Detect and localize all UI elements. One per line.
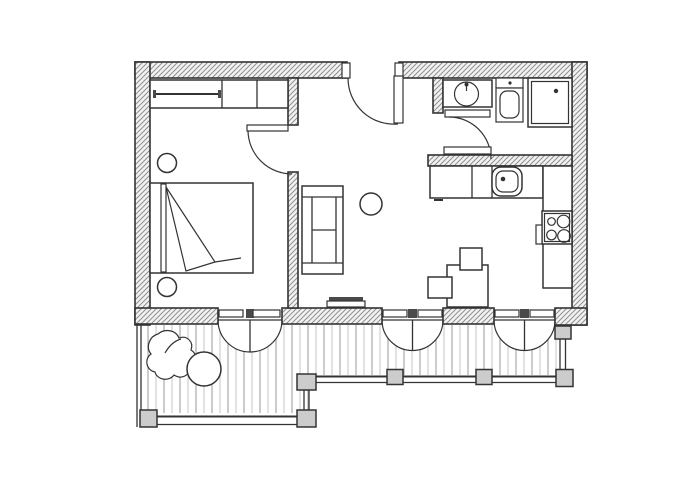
shower-inner	[532, 82, 569, 124]
bedside-stool-upper	[158, 154, 177, 173]
entrance-door-leaf	[394, 76, 403, 123]
french-door-leaves	[219, 309, 554, 318]
toilet-flush-button	[508, 81, 511, 84]
coffee-table	[360, 193, 382, 215]
oven-handle	[536, 225, 542, 244]
wall-bottom-c	[443, 308, 494, 324]
railing-post	[555, 326, 571, 339]
rail-end	[218, 90, 221, 98]
bathroom-west-stub	[433, 78, 443, 113]
rail-end	[153, 90, 156, 98]
kitchen-sink-inner	[496, 171, 518, 192]
wall-top-left	[135, 62, 347, 78]
bedroom-partition-upper	[288, 78, 298, 125]
railing-post	[297, 410, 316, 427]
wall-left	[135, 62, 150, 325]
shower-drain	[554, 89, 558, 93]
washing-machine-dial	[465, 83, 469, 87]
bedroom	[150, 80, 288, 297]
wall-right	[572, 62, 587, 325]
bedroom-door	[247, 125, 292, 174]
bathroom-shelf-strip	[444, 147, 491, 154]
railing-post	[476, 370, 492, 385]
bathroom-south-wall	[428, 155, 572, 166]
railing-post	[556, 370, 573, 387]
radiator-frame	[327, 301, 365, 307]
railing-post	[297, 374, 316, 390]
bedside-stool-lower	[158, 278, 177, 297]
bed-headboard	[161, 184, 166, 272]
entrance-jamb-left	[342, 63, 350, 78]
chair-left	[428, 277, 452, 298]
railing-post	[140, 410, 157, 427]
patio-table	[187, 352, 221, 386]
chair-top	[460, 248, 482, 270]
bedroom-door-leaf	[247, 125, 288, 131]
floor-plan-page	[0, 0, 700, 500]
wall-bottom-a	[135, 308, 218, 324]
living-room	[302, 186, 382, 307]
radiator	[329, 297, 363, 301]
entrance-door	[342, 63, 403, 124]
floor-plan-drawing	[0, 0, 700, 500]
kitchen-north-counter	[430, 166, 543, 198]
entrance-door-swing	[348, 78, 398, 124]
sink-faucet	[501, 177, 506, 182]
toilet-bowl-inner	[500, 91, 519, 118]
wall-bottom-b	[282, 308, 382, 324]
dining-table	[447, 265, 488, 307]
railing-post	[387, 370, 403, 385]
bedroom-partition-lower	[288, 172, 298, 308]
bedroom-door-swing	[248, 131, 292, 174]
wall-bottom-d	[555, 308, 587, 325]
bathroom-door-leaf	[445, 110, 490, 117]
kitchen	[428, 166, 572, 307]
wall-top-right	[399, 62, 587, 78]
